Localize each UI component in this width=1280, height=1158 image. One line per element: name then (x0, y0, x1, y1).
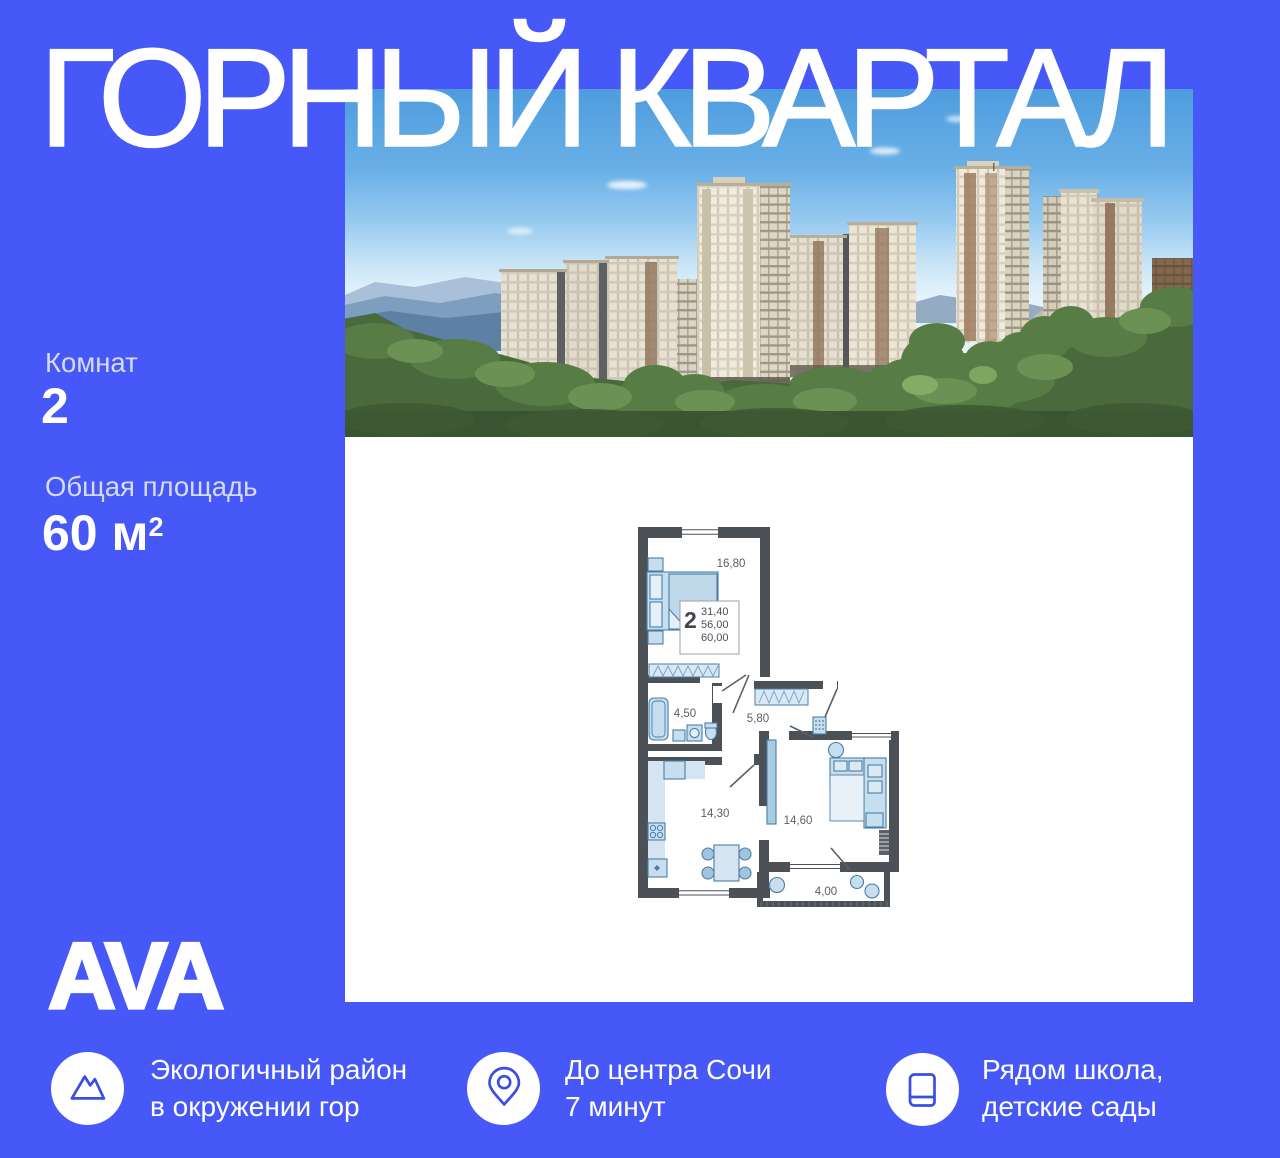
svg-text:14,30: 14,30 (701, 808, 730, 820)
svg-text:4,50: 4,50 (674, 708, 696, 720)
svg-text:56,00: 56,00 (701, 619, 729, 631)
svg-text:31,40: 31,40 (701, 606, 729, 618)
svg-text:16,80: 16,80 (717, 558, 746, 570)
svg-text:4,00: 4,00 (815, 886, 837, 898)
svg-text:14,60: 14,60 (784, 815, 813, 827)
svg-text:2: 2 (684, 607, 697, 633)
svg-text:60,00: 60,00 (701, 632, 729, 644)
svg-text:5,80: 5,80 (747, 713, 769, 725)
